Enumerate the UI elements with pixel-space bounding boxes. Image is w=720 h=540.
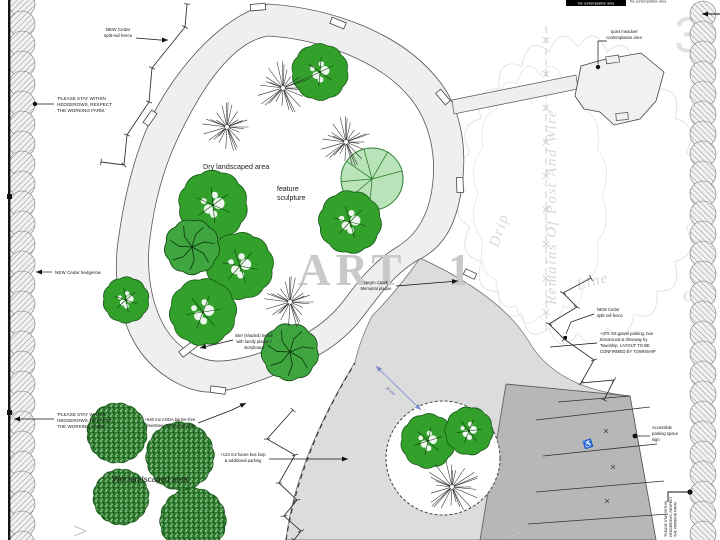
annotation-text: Accessible (652, 425, 673, 430)
bench (250, 3, 266, 11)
fence-post-tick (184, 4, 190, 5)
contemplation-spur-path (452, 75, 578, 114)
annotation-gravel-parking: +479 m2 gravel parking, bus turnaround &… (550, 331, 656, 354)
canopy-highlight (318, 77, 324, 83)
leader-line (550, 343, 597, 347)
canopy-highlight (125, 291, 129, 295)
annotation-text: NEW Cedar hedgerow (55, 270, 102, 275)
leader-line (198, 403, 246, 423)
annotation-text: THE WORKING FARM.' (674, 500, 678, 537)
platform-bench (606, 55, 620, 64)
canopy-highlight (320, 66, 329, 75)
annotation-text: THE WORKING FARM.' (57, 424, 106, 429)
ghost-text-drip: Drip (486, 212, 512, 251)
annotation-text: +640 m2 AODA barrier-free (145, 417, 197, 422)
property-line (8, 0, 10, 540)
annotation-text: 'PLEASE STAY WITHIN (664, 500, 668, 537)
annotation-text: inter (shaded) bench (235, 333, 274, 338)
leader-dot (564, 336, 568, 340)
annotation-cedar-fence-topleft: NEW Cedar split-rail fence (104, 27, 168, 40)
annotation-text: parking space (652, 431, 679, 436)
hedge-marker (7, 194, 12, 199)
leader-line (136, 38, 168, 40)
canopy-highlight (418, 436, 423, 441)
annotation-text: 'quiet meadow' (610, 29, 638, 34)
annotation-text: feature (277, 186, 299, 193)
leader-dot (687, 489, 692, 494)
annotation-text: HEDGEROWS, RESPECT (669, 496, 673, 537)
leader-dot (633, 434, 638, 439)
hedge-marker (7, 410, 12, 415)
annotation-text: sign (652, 437, 660, 442)
annotation-cedar-hedgerow: NEW Cedar hedgerow (36, 270, 102, 275)
annotation-text: CONFIRMED BY TOWNSHIP (600, 349, 656, 354)
annotation-text: with family plaque / (236, 339, 272, 344)
annotation-text: 'PLEASE STAY WITHIN (57, 412, 106, 417)
trunk-dot (125, 299, 127, 301)
ghost-text-line: Line (574, 270, 611, 294)
canopy-highlight (319, 61, 324, 66)
annotation-text: Memorial plaque (361, 286, 393, 291)
annotation-text: Township. LAYOUT TO BE (600, 343, 650, 348)
annotation-aoda-path: +640 m2 AODA barrier-free limestone scre… (145, 403, 246, 428)
leader-line (566, 314, 594, 334)
annotation-sign-rotated: 'PLEASE STAY WITHIN HEDGEROWS, RESPECT T… (664, 489, 693, 537)
canopy-highlight (240, 259, 251, 270)
trunk-dot (202, 311, 204, 313)
dry-area-label: Dry landscaped area (203, 162, 269, 171)
hedge-blob-right (690, 521, 716, 540)
deciduous-tree (445, 407, 493, 455)
platform-bench (616, 112, 629, 120)
trunk-dot (349, 221, 351, 223)
trunk-dot (319, 71, 321, 73)
canopy-highlight (238, 253, 244, 259)
annotation-text: split-rail fence (104, 33, 133, 38)
site-plan-canvas: Remains Of Post And Wire Drip Line Of 3 … (0, 0, 720, 540)
annotation-text: NEW Cedar (597, 307, 620, 312)
wet-area-tree (160, 488, 227, 540)
annotation-text: contemplation area (606, 35, 642, 40)
leader-dot (596, 65, 600, 69)
annotation-text: NEW Cedar (106, 27, 131, 32)
canopy-highlight (124, 304, 129, 309)
canopy-highlight (200, 317, 207, 324)
cutoff-label-text: the contemplation area (630, 0, 667, 4)
trunk-dot (239, 265, 241, 267)
deciduous-tree (103, 277, 148, 323)
annotation-text: turnaround & driveway by (600, 337, 648, 342)
trunk-dot (427, 440, 429, 442)
annotation-stay-within-topleft: 'PLEASE STAY WITHIN HEDGEROWS, RESPECT T… (33, 96, 112, 113)
annotation-text: +134 m2 future bus loop (220, 452, 266, 457)
annotation-text: THE WORKING FARM.' (57, 108, 106, 113)
bench (456, 177, 463, 192)
canopy-highlight (460, 426, 464, 430)
wet-area-label: Wet landscaped area (112, 475, 188, 484)
canopy-highlight (191, 305, 197, 311)
annotation-text: & additional parking (225, 458, 262, 463)
annotation-text: split-rail fence (597, 313, 624, 318)
annotation-text: limestone screenings path (146, 423, 195, 428)
site-plan-page: Remains Of Post And Wire Drip Line Of 3 … (0, 0, 720, 540)
trunk-dot (468, 430, 470, 432)
annotation-text: HEDGEROWS, RESPECT (57, 102, 112, 107)
trunk-dot (212, 204, 214, 206)
fan-tree (164, 220, 219, 275)
canopy-highlight (467, 435, 472, 440)
ghost-text-remains-of-post-and-wire: Remains Of Post And Wire (544, 109, 560, 306)
annotation-text: +479 m2 gravel parking, bus (600, 331, 653, 336)
deciduous-tree (292, 44, 348, 101)
annotation-text: Negro Creek (364, 280, 389, 285)
fence-post-tick (101, 159, 102, 165)
fence-post-tick (281, 516, 287, 517)
stippled-canopy (160, 488, 227, 540)
canopy-highlight (349, 210, 355, 216)
annotation-accessible-sign: Accessible parking space sign (633, 425, 679, 442)
annotation-text: storyboard (244, 345, 264, 350)
cutoff-label-box-text: the contemplation area (578, 2, 615, 6)
annotation-text: 'PLEASE STAY WITHIN (57, 96, 106, 101)
leader-dot (33, 102, 37, 106)
annotation-text: HEDGEROWS, RESPECT (57, 418, 112, 423)
annotation-text: sculpture (277, 195, 306, 202)
